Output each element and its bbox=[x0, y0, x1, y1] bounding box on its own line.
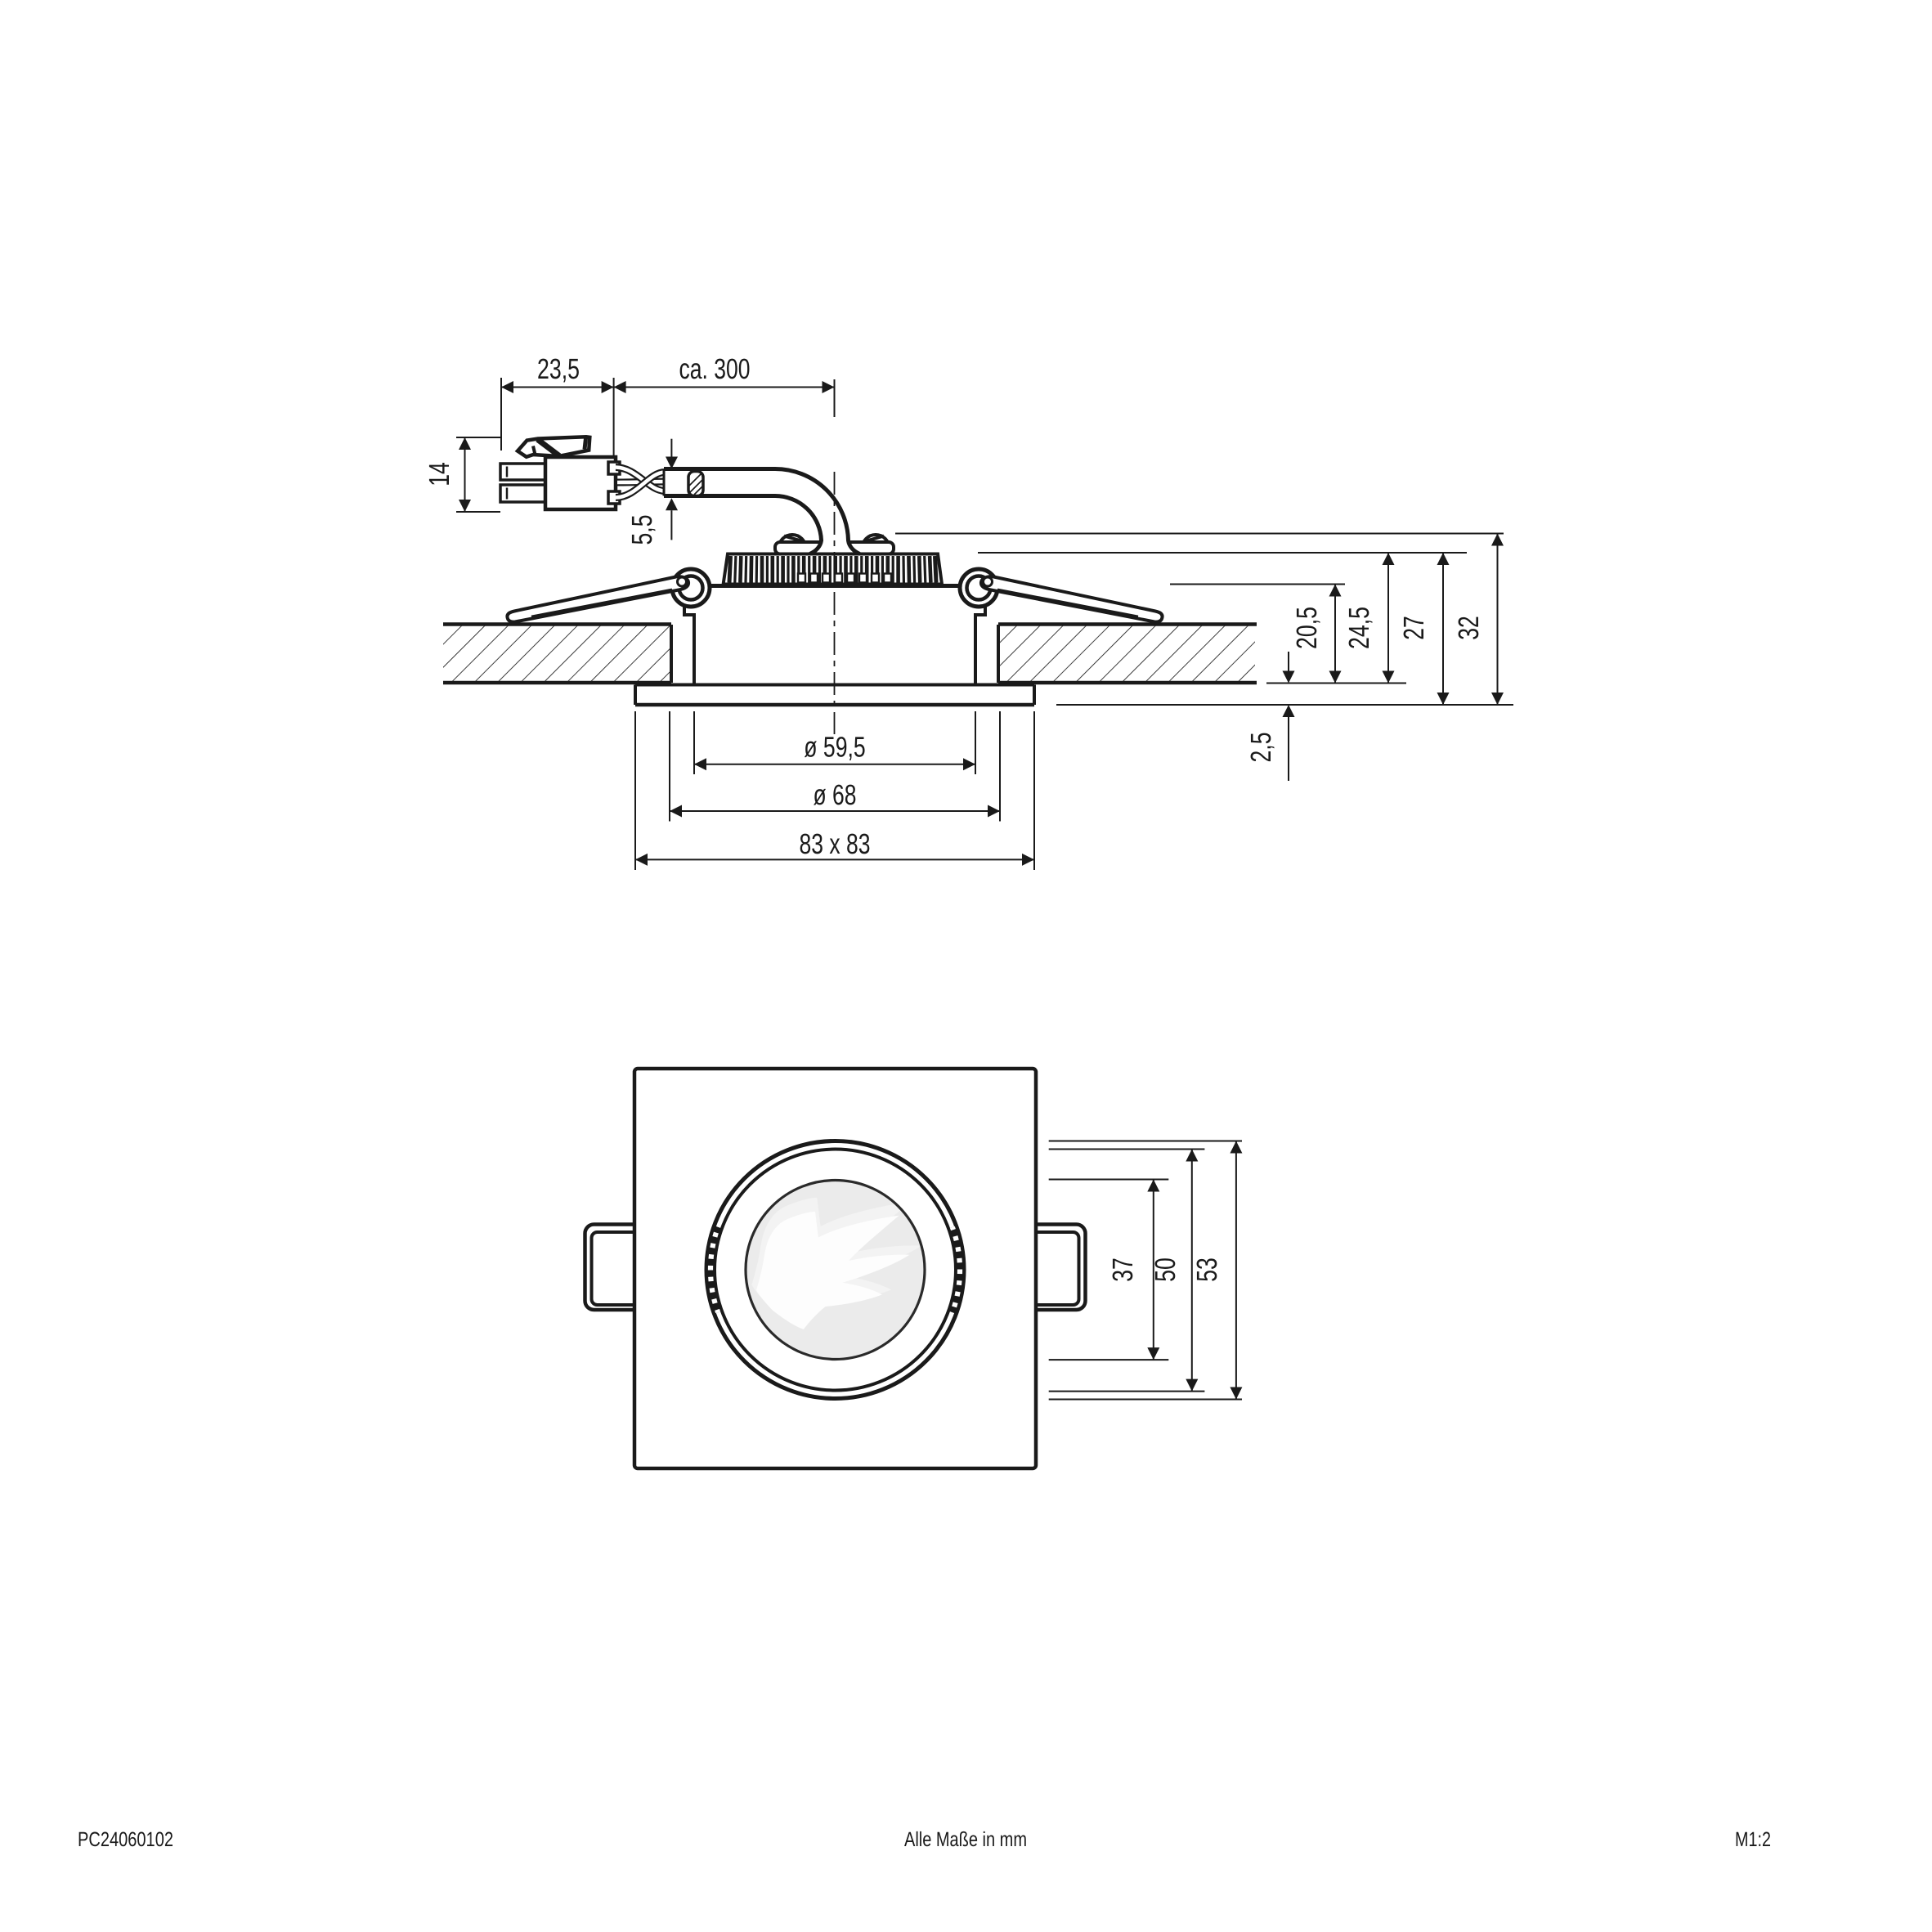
svg-text:83 x 83: 83 x 83 bbox=[800, 828, 871, 860]
svg-text:23,5: 23,5 bbox=[537, 353, 580, 385]
svg-text:M1:2: M1:2 bbox=[1735, 1828, 1771, 1851]
svg-text:14: 14 bbox=[424, 462, 455, 486]
svg-text:ca. 300: ca. 300 bbox=[679, 353, 751, 385]
svg-text:PC24060102: PC24060102 bbox=[78, 1828, 173, 1851]
svg-text:53: 53 bbox=[1191, 1257, 1223, 1282]
svg-text:Alle Maße in mm: Alle Maße in mm bbox=[904, 1828, 1027, 1851]
svg-text:37: 37 bbox=[1107, 1257, 1139, 1282]
svg-text:ø 59,5: ø 59,5 bbox=[804, 732, 866, 764]
svg-text:ø 68: ø 68 bbox=[814, 779, 857, 811]
svg-text:5,5: 5,5 bbox=[626, 515, 658, 545]
svg-text:20,5: 20,5 bbox=[1291, 607, 1323, 649]
svg-text:2,5: 2,5 bbox=[1245, 733, 1277, 763]
svg-text:50: 50 bbox=[1150, 1257, 1181, 1282]
svg-text:32: 32 bbox=[1453, 616, 1485, 640]
svg-text:27: 27 bbox=[1398, 616, 1430, 640]
svg-text:24,5: 24,5 bbox=[1343, 607, 1375, 649]
